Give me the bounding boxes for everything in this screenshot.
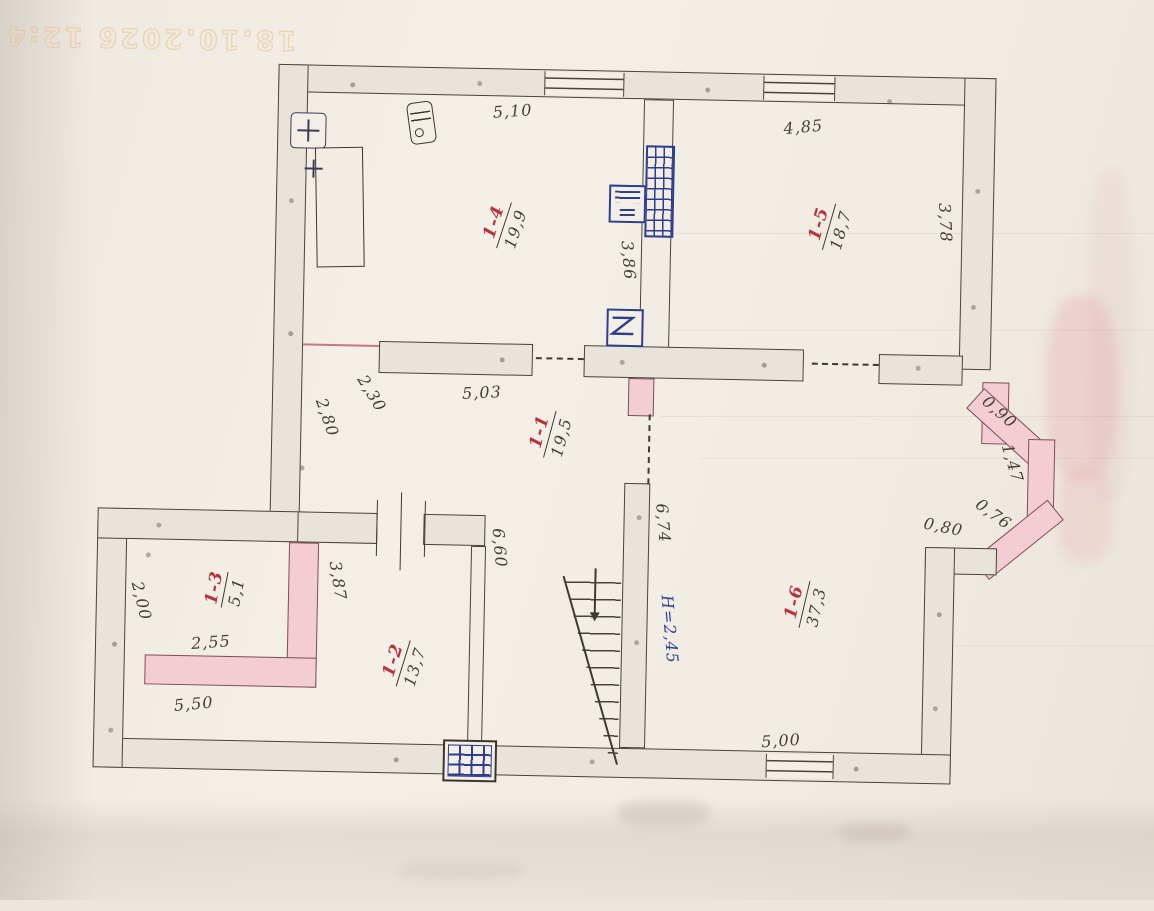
- room-label-1-5: 1-5 18,7: [803, 198, 857, 256]
- dim-right-room15: 3,78: [935, 203, 956, 244]
- wall-annex-top: [97, 507, 308, 542]
- room-label-1-1: 1-1 19,5: [524, 406, 577, 463]
- wall-room12-top-right: [423, 514, 486, 546]
- wall-top: [278, 64, 996, 106]
- room-label-1-4: 1-4 19,9: [477, 196, 532, 255]
- sink-icon: [609, 185, 647, 224]
- wall-annex-left: [93, 507, 128, 768]
- room-label-1-2: 1-2 13,7: [377, 634, 431, 692]
- dim-room13-width: 2,55: [190, 631, 231, 653]
- window-room15: [763, 76, 835, 101]
- dim-offset-230: 2,30: [354, 371, 391, 415]
- dim-top-room14: 5,10: [492, 100, 533, 122]
- wall-stairwell: [619, 483, 650, 748]
- gas-meter-icon: [406, 100, 437, 145]
- floor-plan-photo: 18.10.2026 12:4: [0, 0, 1154, 900]
- room-label-1-3: 1-3 5,1: [200, 562, 250, 617]
- opening-dashed-vertical: [647, 414, 650, 484]
- wall-stub-pink-center: [628, 378, 655, 417]
- plus-mark: [304, 159, 322, 177]
- wall-room12-right: [467, 546, 486, 742]
- dim-annex-width: 5,50: [173, 693, 214, 715]
- wall-right-upper: [959, 78, 997, 371]
- dim-annex-left: 2,00: [128, 579, 156, 622]
- window-room16-bottom: [765, 754, 833, 779]
- wall-room12-top-left: [297, 511, 378, 544]
- opening-dashed-left: [536, 357, 584, 360]
- chimney-flue-icon: [644, 145, 675, 238]
- dim-bay-seg3: 0,76: [972, 494, 1015, 533]
- room-label-1-6: 1-6 37,3: [779, 576, 831, 632]
- opening-dashed-right: [812, 363, 879, 366]
- dim-partition-room14: 3,86: [617, 240, 639, 281]
- zigzag-glyph: [608, 311, 638, 342]
- dim-left-room11: 2,80: [312, 396, 343, 440]
- door-jamb-tick: [376, 500, 378, 556]
- wall-inner-horizontal-b: [583, 345, 804, 381]
- boiler-grid-icon: [442, 739, 497, 782]
- stairs-arrow-head: [590, 612, 600, 621]
- wall-inner-horizontal-a: [379, 341, 534, 376]
- dim-bottom-room16: 5,00: [761, 730, 802, 752]
- dim-inner-wall: 5,03: [462, 382, 503, 403]
- window-room14: [544, 71, 624, 97]
- dim-room12-wall: 6,60: [489, 527, 511, 568]
- red-partition-mark: [303, 343, 379, 347]
- dim-stair-wall: 6,74: [652, 503, 674, 544]
- dim-bay-seg4: 0,80: [922, 514, 965, 540]
- dim-top-room15: 4,85: [783, 116, 824, 138]
- dim-annex-right: 3,87: [326, 560, 351, 602]
- door-jamb-tick: [400, 492, 403, 570]
- wall-room13-bottom: [144, 654, 317, 687]
- floor-plan-drawing: 1-4 19,9 1-5 18,7 1-1 19,5 1-6 37,3 1-2 …: [0, 0, 1154, 911]
- wall-bay-top: [878, 354, 963, 386]
- plus-box-icon: [290, 112, 327, 149]
- wall-right-lower: [920, 547, 955, 783]
- dim-stair-height-note: H=2,45: [658, 594, 683, 664]
- gas-stove-icon: [606, 309, 644, 348]
